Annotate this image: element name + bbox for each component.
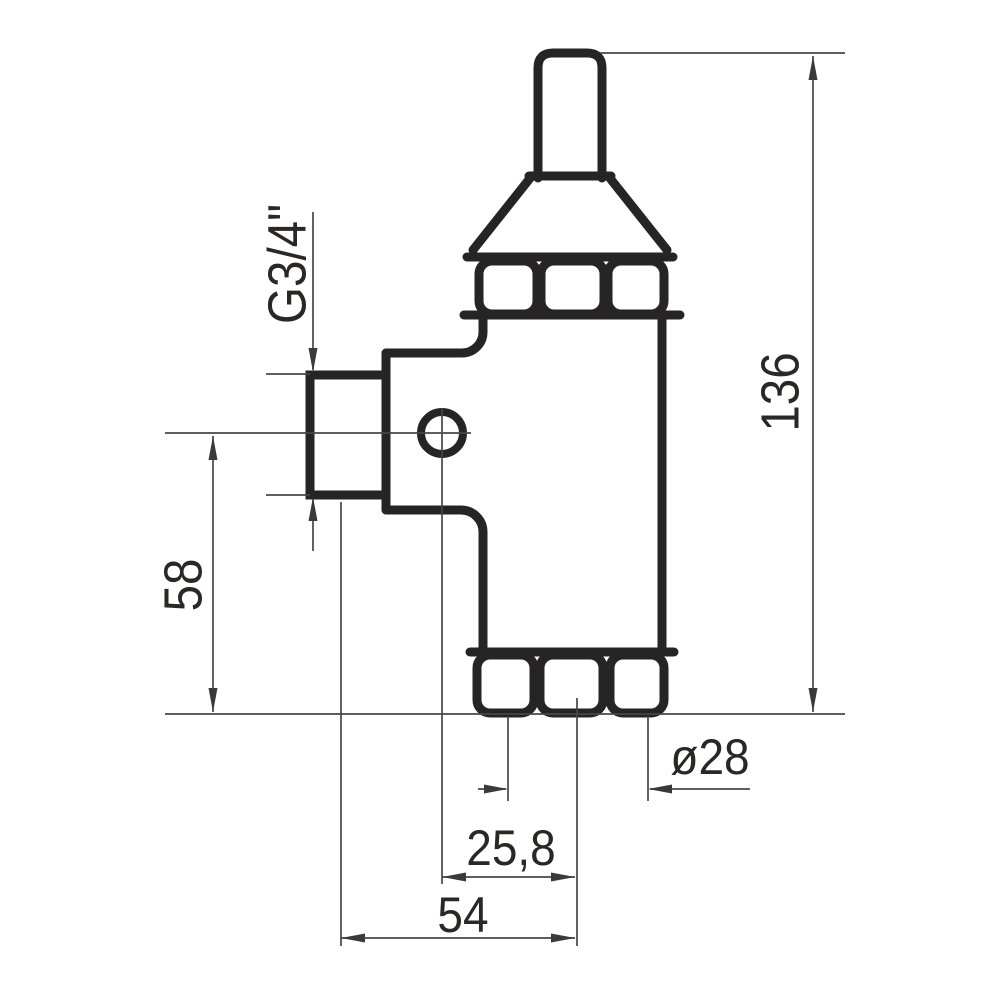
arrowhead-thread-up [309,497,318,521]
dim-label-54: 54 [437,888,488,943]
bottom-nut-lobe-right [610,655,664,713]
dim-label-d28: ø28 [670,730,749,785]
arrowhead-136-bottom [809,688,818,712]
inlet-port-outline [310,375,386,495]
top-nut-lobe-middle [541,261,604,314]
technical-drawing-page: G3/4" 58 136 ø28 25,8 54 [0,0,1000,1000]
arrowhead-54-left [341,934,365,943]
arrowhead-d28-left [484,785,508,794]
top-nut-lobe-left [479,261,537,314]
top-nut-lobe-right [608,261,664,314]
dim-label-25-8: 25,8 [466,821,556,876]
bottom-nut-lobe-left [477,655,534,713]
dim-label-thread: G3/4" [257,204,318,324]
body-left-edge-lower [386,510,483,652]
valve-technical-drawing: G3/4" 58 136 ø28 25,8 54 [0,0,1000,1000]
arrowhead-25-8-left [442,873,466,882]
dim-label-136: 136 [750,352,811,431]
arrowhead-d28-right [648,785,672,794]
bonnet-cone-left-edge [473,177,531,250]
arrowhead-54-right [551,934,575,943]
stem-outline [538,53,602,178]
arrowhead-58-bottom [209,688,218,712]
body-left-edge-upper [386,315,483,353]
dim-label-58: 58 [153,559,214,612]
bonnet-cone-right-edge [609,177,667,250]
arrowhead-thread-down [309,348,318,372]
arrowhead-58-top [209,436,218,460]
bottom-nut-lobe-middle [540,655,603,713]
arrowhead-136-top [809,56,818,80]
